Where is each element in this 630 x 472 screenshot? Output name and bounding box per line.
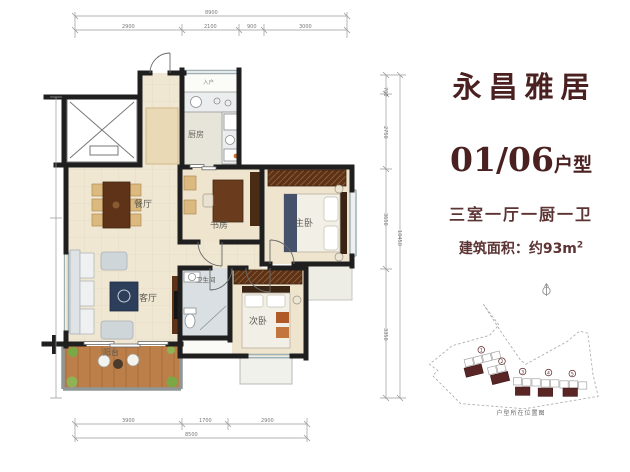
dim-top-seg4: 3000 (299, 24, 312, 30)
site-map-caption: 户型所在位置图 (412, 408, 630, 417)
unit-type-suffix: 户型 (554, 154, 592, 176)
site-number-3: 3 (521, 369, 524, 375)
room-label-study: 书房 (210, 219, 228, 231)
site-number-2: 2 (500, 359, 503, 365)
room-label-bath: 卫生间 (196, 275, 216, 284)
floor-plan: 入户 厨房 餐厅 书房 主卧 客厅 卫生间 次卧 阳台 (0, 0, 415, 472)
hall-cabinet (146, 108, 178, 164)
site-number-4: 4 (547, 370, 550, 376)
site-buildings-bottom (513, 378, 586, 397)
dim-bottom-seg2: 1700 (199, 418, 212, 424)
elevator-shaft (67, 99, 137, 162)
dim-right-seg2: 2750 (382, 126, 388, 139)
dim-right-seg4: 3350 (382, 328, 388, 341)
dim-bottom-total: 8500 (185, 432, 198, 438)
north-arrow-icon (543, 284, 550, 296)
area-superscript: 2 (577, 240, 583, 250)
site-location-map: 1 2 3 4 5 (418, 266, 618, 416)
room-label-entry: 入户 (203, 78, 214, 86)
room-label-second: 次卧 (249, 315, 267, 327)
dim-top-total: 8900 (205, 10, 218, 16)
room-label-living: 客厅 (139, 292, 157, 304)
dim-bottom-seg1: 3900 (122, 418, 135, 424)
dim-right-seg3: 3650 (382, 213, 388, 226)
info-panel: 永昌雅居 01/06户型 三室一厅一厨一卫 建筑面积：约93m2 (412, 0, 630, 472)
dim-top-seg3: 900 (247, 24, 257, 30)
site-number-1: 1 (480, 348, 483, 354)
dim-bottom-seg3: 2900 (261, 418, 274, 424)
room-label-balcony: 阳台 (103, 347, 119, 357)
patio (240, 358, 292, 384)
ac-platform (306, 266, 352, 300)
floorplan-advert-page: 入户 厨房 餐厅 书房 主卧 客厅 卫生间 次卧 阳台 (0, 0, 630, 472)
site-buildings-left (462, 350, 510, 390)
room-label-dining: 餐厅 (134, 198, 152, 210)
unit-code: 01/06 (450, 140, 554, 179)
project-title: 永昌雅居 (412, 64, 630, 106)
room-label-kitchen: 厨房 (188, 129, 204, 139)
site-number-5: 5 (571, 371, 574, 377)
unit-type-line: 01/06户型 (412, 140, 630, 179)
layout-description: 三室一厅一厨一卫 (412, 201, 630, 225)
dim-right-seg1: 700 (382, 87, 388, 97)
dim-top-seg1: 2900 (122, 24, 135, 30)
room-label-master: 主卧 (295, 217, 313, 229)
building-area: 建筑面积：约93m2 (412, 238, 630, 258)
dim-right-total: 10450 (396, 230, 402, 246)
dim-top-seg2: 2100 (204, 24, 217, 30)
area-text: 建筑面积：约93m (459, 241, 577, 257)
